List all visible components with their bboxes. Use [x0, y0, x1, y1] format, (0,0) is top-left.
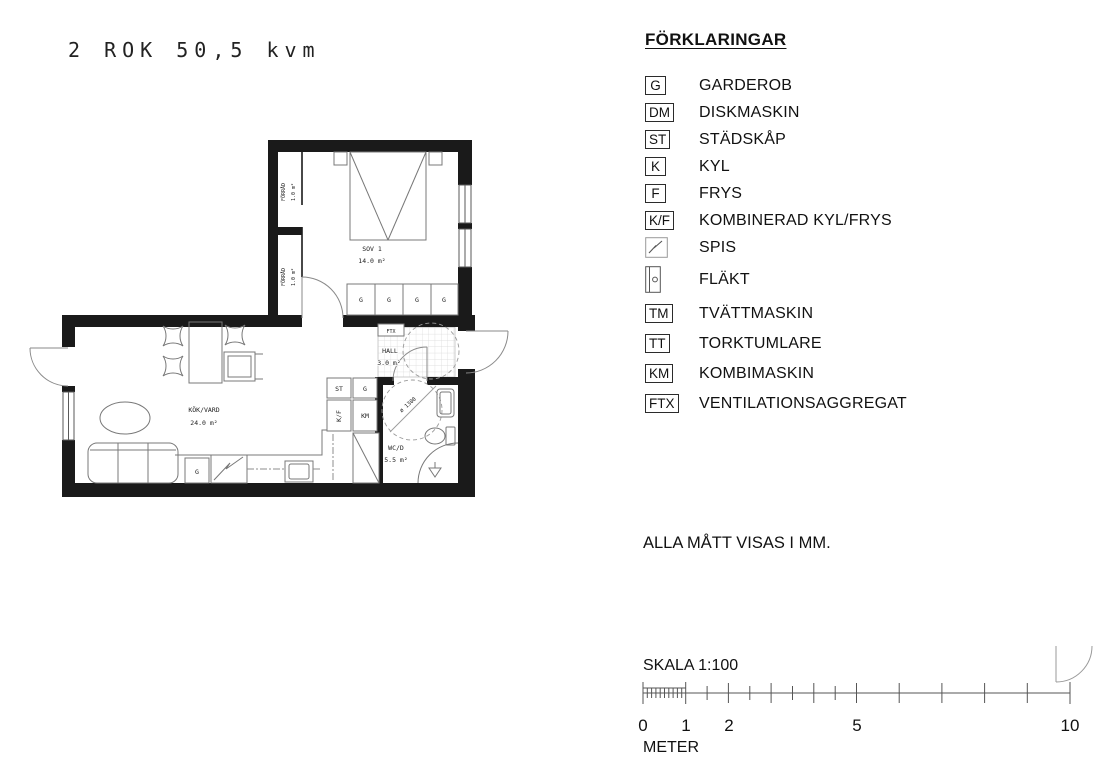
room-area-sov: 14.0 m² — [358, 257, 385, 265]
legend-item-garderob: G GARDEROB — [645, 75, 975, 96]
wardrobe-label: G — [442, 296, 446, 304]
legend-item-flakt: FLÄKT — [645, 266, 975, 293]
room-label-forrad-1: FÖRRÅD — [280, 183, 287, 201]
wardrobe-label: G — [359, 296, 363, 304]
torktumlare-symbol: TT — [645, 334, 670, 353]
wardrobe-label: G — [387, 296, 391, 304]
legend-item-frys: F FRYS — [645, 183, 975, 204]
legend-item-kyl: K KYL — [645, 156, 975, 177]
room-area-kok: 24.0 m² — [190, 419, 217, 427]
washbasin — [437, 389, 454, 417]
scale-tick-label: 5 — [852, 716, 861, 735]
legend-item-tvattmaskin: TM TVÄTTMASKIN — [645, 303, 975, 324]
legend-item-diskmaskin: DM DISKMASKIN — [645, 102, 975, 123]
tvattmaskin-symbol: TM — [645, 304, 673, 323]
legend-item-kombimaskin: KM KOMBIMASKIN — [645, 363, 975, 384]
room-label-wc: WC/D — [388, 444, 404, 452]
scale-tick-label: 10 — [1061, 716, 1080, 735]
legend-item-ftx: FTX VENTILATIONSAGGREGAT — [645, 393, 975, 414]
wardrobe-label: G — [195, 468, 199, 476]
scale-label: SKALA 1:100 — [643, 657, 738, 674]
legend-heading: FÖRKLARINGAR — [645, 30, 975, 50]
room-area-forrad-1: 1.0 m² — [291, 183, 297, 201]
toilet — [425, 427, 455, 445]
shower — [418, 443, 458, 483]
kylfrys-label: K/F — [335, 410, 343, 422]
room-label-forrad-2: FÖRRÅD — [280, 268, 287, 286]
kitchen-counter — [175, 430, 345, 483]
room-area-forrad-2: 1.0 m² — [291, 268, 297, 286]
units-note: ALLA MÅTT VISAS I MM. — [643, 534, 831, 553]
wardrobe-label: G — [415, 296, 419, 304]
kombimaskin-label: KM — [361, 412, 369, 420]
kombimaskin-symbol: KM — [645, 364, 673, 383]
room-area-hall: 3.0 m² — [377, 359, 400, 367]
kylfrys-symbol: K/F — [645, 211, 674, 230]
wardrobe-label: G — [363, 385, 367, 393]
scale-bar: SKALA 1:100 — [600, 630, 1111, 763]
dining-table — [189, 322, 222, 383]
flakt-icon — [645, 266, 661, 293]
scale-tick-label: 2 — [724, 716, 733, 735]
legend-item-kombinerad-kylfrys: K/F KOMBINERAD KYL/FRYS — [645, 210, 975, 231]
stadskap-label: ST — [335, 385, 343, 393]
room-label-sov: SOV 1 — [362, 245, 382, 253]
spis-icon — [645, 237, 668, 258]
ftx-symbol: FTX — [645, 394, 679, 413]
floorplan-drawing: SOV 1 14.0 m² KÖK/VARD 24.0 m² HALL 3.0 … — [0, 0, 560, 560]
scale-unit-label: METER — [643, 739, 699, 756]
turning-circle-label: ø 1300 — [399, 396, 418, 414]
room-area-wc: 5.5 m² — [384, 456, 407, 464]
diskmaskin-symbol: DM — [645, 103, 674, 122]
scale-tick-label: 0 — [638, 716, 647, 735]
chairs — [163, 325, 245, 376]
coffee-table — [100, 402, 150, 434]
wc-turning-circle — [382, 380, 442, 440]
room-label-hall: HALL — [382, 347, 398, 355]
ruler-numbers: 0 1 2 5 10 — [638, 716, 1079, 735]
legend-item-stadskap: ST STÄDSKÅP — [645, 129, 975, 150]
room-label-kok: KÖK/VARD — [188, 405, 219, 414]
page: { "title": "2 ROK 50,5 kvm", "legend": {… — [0, 0, 1111, 763]
stadskap-symbol: ST — [645, 130, 670, 149]
kyl-symbol: K — [645, 157, 666, 176]
ruler — [643, 682, 1070, 704]
sofa — [88, 443, 178, 483]
legend: FÖRKLARINGAR G GARDEROB DM DISKMASKIN ST… — [645, 30, 975, 420]
scale-tick-label: 1 — [681, 716, 690, 735]
ftx-label: FTX — [386, 329, 395, 335]
high-chair — [224, 352, 263, 381]
stove-icon — [214, 457, 243, 480]
garderob-symbol: G — [645, 76, 666, 95]
legend-item-torktumlare: TT TORKTUMLARE — [645, 333, 975, 354]
legend-item-spis: SPIS — [645, 237, 975, 258]
bed — [334, 152, 442, 240]
door-swing-mark — [1056, 646, 1092, 682]
frys-symbol: F — [645, 184, 666, 203]
